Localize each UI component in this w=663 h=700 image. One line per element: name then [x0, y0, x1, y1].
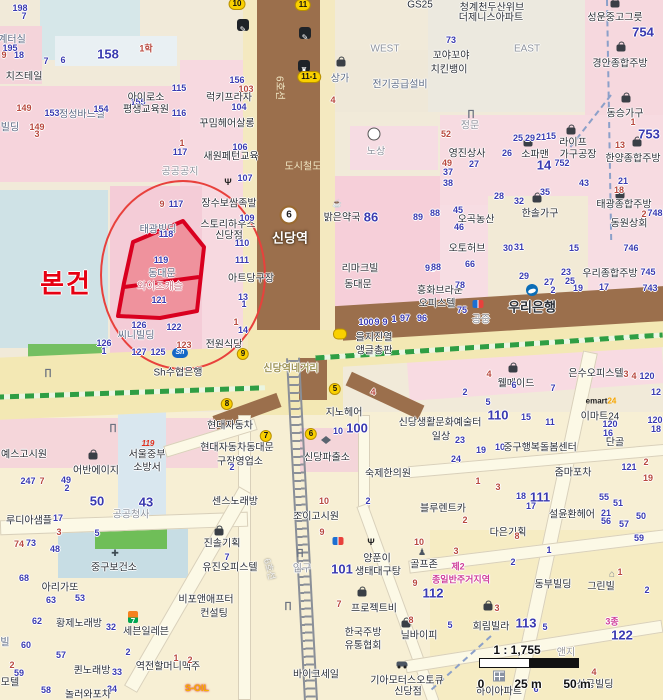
- gate-icon: [109, 417, 116, 435]
- map-label[interactable]: 새원페턴교육: [203, 148, 258, 163]
- map-label[interactable]: 그린빌: [587, 578, 615, 593]
- map-label[interactable]: 루디아샘플: [6, 512, 52, 527]
- map-label[interactable]: 전원식당: [206, 336, 243, 351]
- map-label: 745: [640, 267, 655, 277]
- map-label: 68: [19, 573, 29, 583]
- map-label[interactable]: 예스고시원: [1, 446, 47, 461]
- food-icon: [224, 172, 231, 190]
- map-label: 8: [514, 531, 519, 541]
- map-label: 공공청사: [113, 506, 150, 521]
- map-label: 117: [173, 147, 188, 157]
- map-label[interactable]: 동부빌딩: [535, 576, 572, 591]
- map-label: 9: [159, 199, 164, 209]
- map-label: 제2: [451, 560, 464, 573]
- map-label: WEST: [371, 44, 400, 55]
- map-label: 12: [651, 387, 661, 397]
- bag-icon: [337, 60, 346, 67]
- map-label: 73: [446, 35, 456, 45]
- p-icon: [368, 128, 381, 141]
- map-label: 25: [513, 133, 523, 143]
- map-label[interactable]: 한양종합주방: [605, 150, 660, 165]
- map-label: 4: [631, 371, 636, 381]
- seven-icon: [128, 611, 138, 623]
- map-label: 2: [644, 585, 649, 595]
- map-label: 입구: [293, 560, 311, 575]
- map-label: 7: [336, 599, 341, 609]
- map-label: 2: [550, 285, 555, 295]
- map-label: 2: [641, 209, 646, 219]
- map-label[interactable]: 우리종합주방: [582, 265, 637, 280]
- map-label: 86: [364, 210, 378, 225]
- map-label: 전기공급설비: [372, 76, 427, 91]
- map-label: 1: [173, 653, 178, 663]
- map-label: 9: [374, 317, 379, 327]
- map-label: 16: [603, 428, 613, 438]
- map-label: 1: [617, 567, 622, 577]
- map-label[interactable]: 리마크빌: [342, 260, 379, 275]
- map-label: 공중: [472, 311, 490, 326]
- map-label: 73: [26, 538, 36, 548]
- map-label[interactable]: 닐바이피: [401, 627, 438, 642]
- map-label: 18: [614, 185, 624, 195]
- map-label: 10: [333, 426, 343, 436]
- map-label[interactable]: 앵글총판: [356, 342, 393, 357]
- map-label: 66: [465, 259, 475, 269]
- map-label: 8: [408, 615, 413, 625]
- map-label: 154: [93, 104, 108, 114]
- map-label: 121: [151, 295, 166, 305]
- scale-ratio: 1 : 1,755: [493, 643, 540, 657]
- map-label: 7: [21, 11, 26, 21]
- map-label: 5: [485, 397, 490, 407]
- map-label: 5: [542, 622, 547, 632]
- bag-icon: [89, 453, 98, 460]
- map-label: 38: [443, 178, 453, 188]
- map-label[interactable]: 진솔기획: [204, 535, 241, 550]
- scale-bar: [479, 658, 579, 668]
- map-label: 15: [569, 243, 579, 253]
- map-label: 6호선: [274, 76, 289, 100]
- zoning-label: 종일반주거지역: [432, 573, 490, 586]
- map-label: 118: [159, 229, 174, 239]
- map-label[interactable]: 센스노래방: [212, 493, 258, 508]
- map-canvas[interactable]: 6 1987계터실1951891581학76치즈테일149153정성바느질154…: [0, 0, 663, 700]
- bag-icon: [484, 604, 493, 611]
- map-label[interactable]: 세븐일레븐: [123, 623, 169, 638]
- map-label: 127: [131, 347, 146, 357]
- map-label: 3: [623, 369, 628, 379]
- car-icon: [397, 662, 408, 667]
- map-label[interactable]: 조이고시원: [293, 508, 339, 523]
- map-label: 117: [169, 199, 184, 209]
- map-label[interactable]: 치즈테일: [6, 68, 43, 83]
- map-label: 15: [546, 131, 556, 141]
- map-label: 앤지: [557, 644, 575, 659]
- map-label[interactable]: 일상: [432, 428, 450, 443]
- map-label[interactable]: 지노헤어: [326, 404, 363, 419]
- map-label: 28: [494, 191, 504, 201]
- map-label[interactable]: 설윤환헤어: [549, 506, 595, 521]
- map-label: 18: [14, 50, 24, 60]
- map-label: 19: [476, 445, 486, 455]
- oval-icon: [333, 329, 347, 340]
- map-label: 5: [447, 620, 452, 630]
- map-label: 2: [510, 557, 515, 567]
- map-label: 18: [651, 424, 661, 434]
- map-label: 158: [97, 47, 119, 62]
- map-label: 와이즈캐슬: [137, 278, 183, 293]
- map-label: 13: [615, 140, 625, 150]
- map-label: 2: [643, 457, 648, 467]
- map-label: 46: [454, 222, 464, 232]
- map-label[interactable]: 꾸밈헤어살롱: [199, 115, 254, 130]
- map-label: 55: [599, 492, 609, 502]
- wc-icon: [333, 537, 344, 545]
- map-label: 2: [462, 515, 467, 525]
- map-label: 74: [14, 539, 24, 549]
- map-label: 빌딩: [1, 119, 19, 134]
- map-label: 57: [56, 650, 66, 660]
- map-label[interactable]: 성운중고그릇: [587, 9, 642, 24]
- map-label: EAST: [514, 44, 540, 55]
- emart-icon: emart24: [586, 397, 617, 406]
- map-label[interactable]: 밝은약국: [324, 209, 361, 224]
- map-label: 50: [636, 511, 646, 521]
- map-label: 17: [599, 282, 609, 292]
- station-name: 신당역: [272, 228, 308, 247]
- map-label[interactable]: 어반에이지: [73, 462, 119, 477]
- map-label[interactable]: 골프존: [410, 556, 438, 571]
- scale-tick-50: 50 m: [563, 677, 590, 691]
- map-label: 4: [591, 667, 596, 677]
- map-label: 6: [511, 380, 516, 390]
- map-label: 3: [453, 546, 458, 556]
- map-label[interactable]: 유통협회: [345, 637, 382, 652]
- map-label: 3: [34, 129, 39, 139]
- map-label: 119: [154, 255, 169, 265]
- map-label: 9: [382, 317, 387, 327]
- map-label[interactable]: 신당점: [394, 683, 422, 698]
- map-label[interactable]: 블루렌트카: [420, 500, 466, 515]
- station-exit-10[interactable]: 10: [229, 0, 246, 10]
- map-label: 101: [331, 562, 353, 577]
- map-label: 10: [414, 537, 424, 547]
- scale-tick-25: 25 m: [514, 677, 541, 691]
- map-label[interactable]: 프로젝트비: [351, 600, 397, 615]
- bag-icon: [617, 45, 626, 52]
- subject-property-label: 본건: [40, 264, 92, 301]
- map-label: 6: [60, 55, 65, 65]
- map-label: 45: [453, 205, 463, 215]
- map-label[interactable]: 중구행복돌봄센터: [503, 439, 577, 454]
- map-label: 100: [346, 421, 368, 436]
- wc-icon: [473, 300, 484, 308]
- map-label: 63: [46, 595, 56, 605]
- map-label: 27: [469, 159, 479, 169]
- map-label: 23: [455, 435, 465, 445]
- map-label: 89: [413, 212, 423, 222]
- sh-bank-label[interactable]: Sh수협은행: [153, 364, 202, 379]
- map-label: 115: [172, 83, 187, 93]
- map-label: 상가: [331, 70, 349, 85]
- map-label[interactable]: 신당파출소: [304, 449, 350, 464]
- map-label: 122: [166, 322, 181, 332]
- map-label: 14: [537, 158, 551, 173]
- map-label: 19: [573, 283, 583, 293]
- map-label: 1: [546, 545, 551, 555]
- map-label: 35: [540, 187, 550, 197]
- map-label: 50: [90, 494, 104, 509]
- map-label: 56: [601, 516, 611, 526]
- map-label[interactable]: 유진오피스텔: [202, 559, 257, 574]
- map-label[interactable]: 아리가또: [42, 579, 79, 594]
- map-label: 11: [545, 417, 555, 427]
- map-label: 2: [229, 462, 234, 472]
- map-label: 30: [503, 243, 513, 253]
- map-label: 111: [235, 255, 249, 265]
- map-label: 97: [400, 313, 410, 323]
- map-label: 26: [502, 148, 512, 158]
- map-label: 110: [235, 238, 250, 248]
- map-label: 113: [516, 616, 537, 631]
- map-label: 51: [613, 498, 623, 508]
- junction-name: 신당역네거리: [263, 360, 318, 375]
- bag-icon: [358, 590, 367, 597]
- map-label: 748: [647, 208, 662, 218]
- map-label: 96: [417, 313, 427, 323]
- map-label[interactable]: 현대자동차: [207, 417, 253, 432]
- station-exit-11-1[interactable]: 11-1: [297, 71, 321, 83]
- map-label: 9: [1, 50, 6, 60]
- map-label: 104: [231, 102, 246, 112]
- map-label: 씨니빌딩: [118, 327, 155, 342]
- sidewalk: [320, 0, 335, 362]
- map-label[interactable]: 더제니스아파트: [459, 9, 523, 24]
- map-label[interactable]: 아트당구장: [228, 270, 274, 285]
- apt-icon: [493, 671, 505, 682]
- map-label: 1: [475, 476, 480, 486]
- map-label[interactable]: 오토허브: [449, 240, 486, 255]
- map-label: 1: [391, 314, 396, 324]
- map-label: 1학: [139, 42, 152, 55]
- map-label: 17: [53, 513, 63, 523]
- map-label[interactable]: 생태대구탕: [355, 563, 401, 578]
- map-label: 4: [486, 369, 491, 379]
- map-label: 14: [238, 325, 248, 335]
- pen-icon: [237, 19, 249, 31]
- map-label: 5: [94, 528, 99, 538]
- map-label: 247: [20, 476, 35, 486]
- map-label[interactable]: 숙제한의원: [365, 465, 411, 480]
- map-label[interactable]: 동대문: [344, 276, 372, 291]
- food-icon: [367, 532, 374, 550]
- map-label: 9: [412, 578, 417, 588]
- map-label: 2: [9, 660, 14, 670]
- map-label: 53: [75, 593, 85, 603]
- map-label[interactable]: 동승가구: [607, 105, 644, 120]
- map-label[interactable]: 구장영업소: [217, 453, 263, 468]
- map-label: 88: [430, 208, 440, 218]
- map-label: 정문: [461, 117, 479, 132]
- map-label: 746: [623, 243, 638, 253]
- map-label: 125: [150, 347, 165, 357]
- pen-icon: [299, 27, 311, 39]
- map-label: 32: [106, 622, 116, 632]
- map-label: 59: [634, 533, 644, 543]
- map-label: 4: [370, 387, 375, 397]
- map-label: 노상: [367, 143, 385, 158]
- station-exit-11[interactable]: 11: [295, 0, 311, 11]
- map-label[interactable]: 영진상사: [449, 145, 486, 160]
- map-label: 153: [44, 108, 59, 118]
- map-label[interactable]: 놀러와포차: [65, 686, 111, 700]
- map-label: 공공공지: [162, 163, 199, 178]
- map-label[interactable]: 회림빌라: [473, 618, 510, 633]
- map-label: 58: [41, 685, 51, 695]
- map-label: 109: [239, 213, 254, 223]
- map-label: 149: [16, 103, 31, 113]
- line6-station-badge[interactable]: 6: [280, 206, 299, 225]
- map-label: 18: [516, 491, 526, 501]
- bag-icon: [611, 1, 620, 8]
- map-label: 743: [642, 283, 657, 293]
- map-label[interactable]: 치킨뱅이: [431, 61, 468, 76]
- map-label: 2: [365, 496, 370, 506]
- map-label: 100: [358, 317, 373, 327]
- map-label: 752: [554, 158, 569, 168]
- map-label: 17: [526, 501, 536, 511]
- map-label: 1: [101, 346, 106, 356]
- map-label[interactable]: 퀸노래방: [74, 662, 111, 677]
- map-label[interactable]: 은수오피스텔: [568, 365, 623, 380]
- map-label: 75: [457, 305, 467, 315]
- map-label[interactable]: 오피스텔: [419, 295, 456, 310]
- map-label: 88: [431, 262, 441, 272]
- map-label[interactable]: 컨설팅: [200, 605, 228, 620]
- map-label: 3: [495, 482, 500, 492]
- map-label[interactable]: 비포앤애프터: [178, 591, 233, 606]
- map-label: 21: [536, 132, 546, 142]
- map-label: 7: [550, 383, 555, 393]
- block: [350, 126, 438, 170]
- map-label: 62: [32, 616, 42, 626]
- map-label: 112: [423, 586, 444, 601]
- map-label: 도시철도: [285, 158, 322, 173]
- map-label: 107: [237, 173, 252, 183]
- map-label: 754: [632, 25, 654, 40]
- map-label[interactable]: GS25: [407, 0, 433, 11]
- map-label[interactable]: 소방서: [133, 459, 161, 474]
- map-label: 753: [638, 127, 660, 142]
- map-label: 1: [630, 117, 635, 127]
- map-label: 3: [56, 527, 61, 537]
- bag-icon: [509, 366, 518, 373]
- map-label[interactable]: 바이크세일: [293, 666, 339, 681]
- map-label: 110: [488, 408, 509, 423]
- map-label[interactable]: 신당생활문화예술터: [399, 414, 482, 429]
- scale-tick-0: 0: [478, 677, 485, 691]
- map-label: 24: [451, 454, 461, 464]
- map-label: 57: [619, 519, 629, 529]
- map-label: 37: [443, 167, 453, 177]
- map-label: 120: [639, 371, 654, 381]
- bag-icon: [622, 96, 631, 103]
- map-label[interactable]: 다은기획: [490, 524, 527, 539]
- map-label: 60: [21, 640, 31, 650]
- map-label: 3종: [605, 615, 618, 628]
- gate-icon: [296, 542, 303, 560]
- map-label: 2: [462, 387, 467, 397]
- map-label: 33: [112, 667, 122, 677]
- map-label: 3: [494, 603, 499, 613]
- map-label: 빌: [0, 634, 9, 649]
- map-label[interactable]: 모텔: [1, 674, 19, 689]
- map-label: 43: [579, 178, 589, 188]
- map-label[interactable]: 꼬야꼬야: [433, 47, 470, 62]
- map-label: 10: [319, 496, 329, 506]
- map-label: 31: [514, 242, 524, 252]
- woori-icon: [526, 284, 538, 296]
- map-label: 7: [43, 56, 48, 66]
- map-label: 2: [125, 647, 130, 657]
- map-label[interactable]: 장수보쌈족발: [201, 195, 256, 210]
- map-label: 116: [172, 108, 187, 118]
- woori-bank-label[interactable]: 우리은행: [508, 297, 556, 316]
- map-label[interactable]: 줌마포차: [555, 464, 592, 479]
- map-label: 15: [521, 412, 531, 422]
- map-label[interactable]: 황제노래방: [56, 615, 102, 630]
- map-label: 48: [50, 544, 60, 554]
- s-oil-label: S-OIL: [185, 683, 209, 693]
- map-label: 2: [187, 655, 192, 665]
- map-label: 1: [241, 299, 246, 309]
- map-label: 29: [525, 133, 535, 143]
- map-label: 123: [176, 340, 191, 350]
- map-label: 4: [330, 95, 335, 105]
- map-label: 52: [441, 129, 451, 139]
- main-road-north: [257, 0, 320, 362]
- map-label[interactable]: 중구보건소: [91, 559, 137, 574]
- map-label: 9: [319, 527, 324, 537]
- map-label: 19: [643, 473, 653, 483]
- map-label: 2: [64, 483, 69, 493]
- map-label[interactable]: 한솔가구: [522, 205, 559, 220]
- map-label: 122: [611, 628, 633, 643]
- gate-icon: [44, 362, 51, 380]
- map-label[interactable]: 경안종합주방: [592, 55, 647, 70]
- map-label: 121: [621, 462, 636, 472]
- gate-icon: [284, 595, 291, 613]
- map-label: 7: [39, 476, 44, 486]
- map-label: 78: [455, 280, 465, 290]
- map-label: 29: [519, 271, 529, 281]
- map-label[interactable]: 평생교육원: [123, 101, 169, 116]
